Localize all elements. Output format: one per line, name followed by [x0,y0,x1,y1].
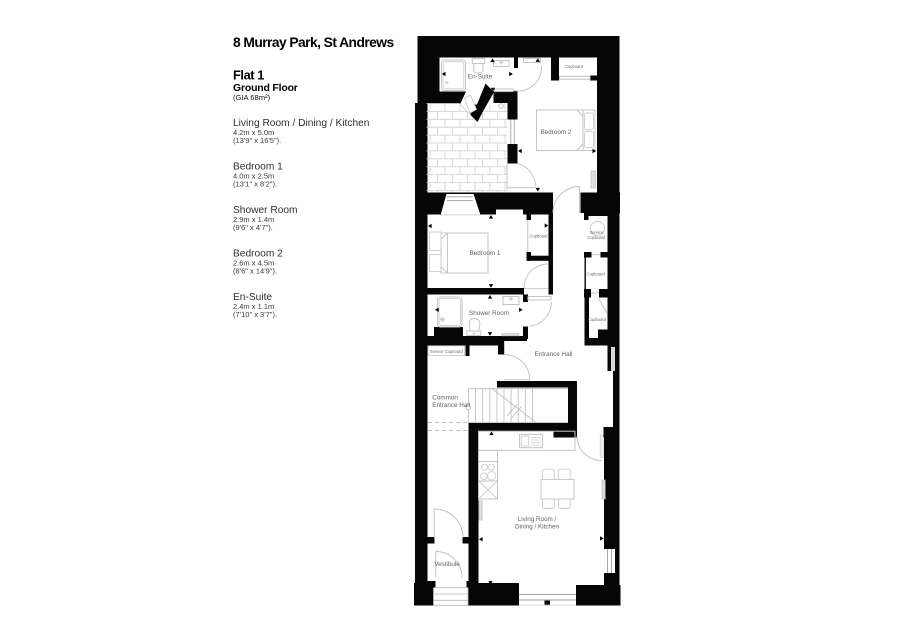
svg-text:Cupboard: Cupboard [587,271,606,276]
svg-text:Flat 1: Flat 1 [233,68,264,83]
svg-text:Common: Common [432,394,458,401]
svg-text:Living Room /: Living Room / [518,516,557,523]
svg-text:Entrance Hall: Entrance Hall [535,351,573,358]
svg-text:En-Suite: En-Suite [468,73,493,80]
svg-text:Cupboard: Cupboard [565,64,584,69]
svg-text:Cupboard: Cupboard [530,233,549,238]
svg-text:Cupboard: Cupboard [588,317,607,322]
svg-text:Bedroom 1: Bedroom 1 [470,250,501,257]
svg-text:Service Cupboard: Service Cupboard [430,349,463,354]
svg-text:(8'6" x 14'9").: (8'6" x 14'9"). [233,266,277,275]
svg-text:(9'6" x 4'7").: (9'6" x 4'7"). [233,223,273,232]
svg-text:Dining / Kitchen: Dining / Kitchen [515,523,560,530]
svg-text:(7'10" x 3'7").: (7'10" x 3'7"). [233,310,277,319]
svg-text:Vestibule: Vestibule [434,561,460,568]
svg-text:(13'1" x 8'2").: (13'1" x 8'2"). [233,179,277,188]
svg-text:(13'9" x 16'5").: (13'9" x 16'5"). [233,136,281,145]
svg-text:Entrance Hall: Entrance Hall [432,402,470,409]
svg-text:Shower Room: Shower Room [469,310,509,317]
svg-text:Cupboard: Cupboard [587,235,606,240]
svg-text:8 Murray Park, St Andrews: 8 Murray Park, St Andrews [233,35,394,50]
svg-text:Bedroom 2: Bedroom 2 [541,129,572,136]
svg-text:(GIA 68m²): (GIA 68m²) [233,93,271,102]
